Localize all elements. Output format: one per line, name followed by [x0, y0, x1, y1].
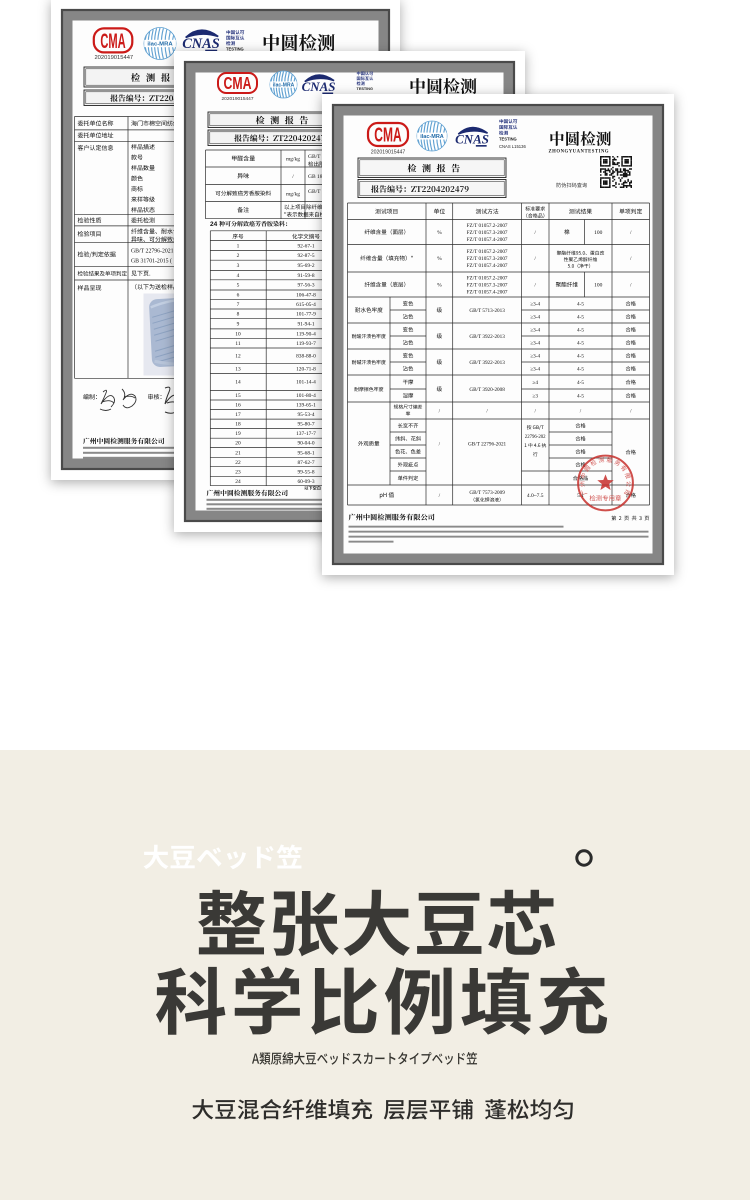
svg-text:≥3-4: ≥3-4	[530, 341, 540, 347]
svg-text:TESTING: TESTING	[357, 87, 374, 91]
svg-text:97-56-3: 97-56-3	[297, 283, 314, 289]
svg-text:5: 5	[237, 283, 240, 289]
svg-text:GB/T 7573-2009: GB/T 7573-2009	[469, 490, 505, 496]
svg-text:GB/T 22796-2021: GB/T 22796-2021	[131, 249, 174, 255]
svg-text:91-94-1: 91-94-1	[297, 322, 314, 328]
svg-text:CMA: CMA	[100, 30, 125, 53]
svg-text:120-71-8: 120-71-8	[296, 366, 316, 372]
svg-text:≥3: ≥3	[532, 394, 538, 400]
svg-text:17: 17	[235, 412, 241, 418]
svg-text:14: 14	[235, 380, 241, 386]
svg-text:9: 9	[237, 322, 240, 328]
svg-text:15: 15	[235, 393, 241, 399]
svg-text:≥4: ≥4	[532, 380, 538, 386]
svg-text:23: 23	[235, 469, 241, 475]
svg-text:GB/T 22796-2021: GB/T 22796-2021	[468, 442, 506, 448]
svg-text:%: %	[437, 256, 442, 262]
svg-text:119-93-7: 119-93-7	[296, 341, 316, 347]
svg-text:11: 11	[235, 341, 240, 347]
svg-text:CMA: CMA	[374, 125, 402, 147]
svg-text:FZ/T 01057.4-2007: FZ/T 01057.4-2007	[467, 289, 508, 295]
svg-text:95-68-1: 95-68-1	[297, 450, 314, 456]
svg-text:202019015447: 202019015447	[221, 96, 253, 102]
svg-text:GB/T 3920-2008: GB/T 3920-2008	[469, 387, 505, 393]
svg-text:2: 2	[237, 253, 240, 259]
svg-text:8: 8	[237, 312, 240, 318]
svg-text:≥3-4: ≥3-4	[530, 367, 540, 373]
svg-text:4-5: 4-5	[577, 341, 584, 347]
svg-text:CMA: CMA	[224, 73, 252, 93]
svg-text:FZ/T 01057.2-2007: FZ/T 01057.2-2007	[467, 275, 508, 281]
svg-text:20: 20	[235, 441, 241, 447]
svg-text:22: 22	[235, 460, 241, 466]
svg-text:mg/kg: mg/kg	[286, 157, 300, 163]
svg-text:FZ/T 01057.3-2007: FZ/T 01057.3-2007	[467, 230, 508, 236]
svg-text:≥3-4: ≥3-4	[530, 315, 540, 321]
svg-text:4-5: 4-5	[577, 328, 584, 334]
svg-text:119-90-4: 119-90-4	[296, 331, 316, 337]
svg-text:ilac-MRA: ilac-MRA	[273, 82, 295, 88]
svg-text:202019015447: 202019015447	[371, 150, 406, 156]
svg-text:FZ/T 01057.3-2007: FZ/T 01057.3-2007	[467, 256, 508, 262]
svg-text:4-5: 4-5	[577, 302, 584, 308]
svg-text:FZ/T 01057.4-2007: FZ/T 01057.4-2007	[467, 263, 508, 269]
svg-text:4-5: 4-5	[577, 380, 584, 386]
svg-text:106-47-8: 106-47-8	[296, 293, 316, 299]
svg-text:99-55-8: 99-55-8	[297, 469, 314, 475]
svg-text:GB 31701-2015 (: GB 31701-2015 (	[131, 258, 172, 265]
svg-text:GB/T 3922-2013: GB/T 3922-2013	[469, 360, 505, 366]
svg-text:87-62-7: 87-62-7	[297, 460, 314, 466]
svg-text:CNAS L15136: CNAS L15136	[499, 144, 526, 149]
svg-text:FZ/T 01057.4-2007: FZ/T 01057.4-2007	[467, 237, 508, 243]
svg-text:FZ/T 01057.2-2007: FZ/T 01057.2-2007	[467, 223, 508, 229]
svg-text:95-69-2: 95-69-2	[297, 263, 314, 269]
svg-text:4-5: 4-5	[577, 367, 584, 373]
svg-text:16: 16	[235, 403, 241, 409]
svg-text:3: 3	[237, 263, 240, 269]
svg-text:60-09-3: 60-09-3	[297, 479, 314, 485]
svg-text:18: 18	[235, 422, 241, 428]
svg-text:95-80-7: 95-80-7	[297, 422, 314, 428]
svg-text:TESTING: TESTING	[226, 47, 244, 52]
svg-text:FZ/T 01057.3-2007: FZ/T 01057.3-2007	[467, 282, 508, 288]
svg-text:mg/kg: mg/kg	[286, 191, 300, 197]
svg-text:4-5: 4-5	[577, 354, 584, 360]
svg-text:90-04-0: 90-04-0	[297, 441, 314, 447]
svg-text:TESTING: TESTING	[499, 136, 517, 141]
svg-text:202019015447: 202019015447	[94, 55, 133, 61]
svg-text:139-65-1: 139-65-1	[296, 403, 316, 409]
svg-text:≥3-4: ≥3-4	[530, 354, 540, 360]
svg-text:91-59-8: 91-59-8	[297, 273, 314, 279]
svg-text:92-67-1: 92-67-1	[297, 243, 314, 249]
svg-text:95-53-4: 95-53-4	[297, 412, 314, 418]
svg-text:1: 1	[237, 243, 240, 249]
svg-text:4.0~7.5: 4.0~7.5	[527, 493, 544, 499]
svg-text:13: 13	[235, 366, 241, 372]
svg-text:92-87-5: 92-87-5	[297, 253, 314, 259]
svg-text:615-05-4: 615-05-4	[296, 302, 316, 308]
svg-text:ilac-MRA: ilac-MRA	[420, 134, 444, 140]
svg-text:100: 100	[594, 230, 603, 236]
svg-text:CNAS: CNAS	[302, 80, 336, 94]
svg-text:100: 100	[594, 283, 603, 289]
svg-text:137-17-7: 137-17-7	[296, 431, 316, 437]
svg-text:ZHONGYUANTESTING: ZHONGYUANTESTING	[549, 150, 610, 155]
svg-text:838-88-0: 838-88-0	[296, 354, 316, 360]
svg-text:101-80-4: 101-80-4	[296, 393, 316, 399]
svg-text:4: 4	[237, 273, 240, 279]
svg-text:%: %	[437, 283, 442, 289]
svg-text:21: 21	[235, 450, 241, 456]
svg-text:≥3-4: ≥3-4	[530, 328, 540, 334]
svg-text:FZ/T 01057.2-2007: FZ/T 01057.2-2007	[467, 249, 508, 255]
svg-text:24: 24	[210, 221, 218, 228]
svg-text:24: 24	[235, 479, 241, 485]
svg-text:12: 12	[235, 354, 241, 360]
svg-text:≥3-4: ≥3-4	[530, 302, 540, 308]
svg-text:GB/T 3922-2013: GB/T 3922-2013	[469, 334, 505, 340]
svg-text:6: 6	[237, 293, 240, 299]
svg-text:10: 10	[235, 331, 241, 337]
svg-text:CNAS: CNAS	[455, 133, 489, 147]
svg-text:CNAS: CNAS	[182, 36, 220, 52]
svg-text:101-77-9: 101-77-9	[296, 312, 316, 318]
svg-text:GB/T 5713-2013: GB/T 5713-2013	[469, 308, 505, 314]
svg-text:ilac-MRA: ilac-MRA	[147, 42, 173, 48]
svg-text:%: %	[437, 230, 442, 236]
svg-text:19: 19	[235, 431, 241, 437]
svg-text:101-14-4: 101-14-4	[296, 380, 316, 386]
svg-text:4-5: 4-5	[577, 315, 584, 321]
svg-text:7: 7	[237, 302, 240, 308]
svg-text:22796-202: 22796-202	[525, 435, 546, 440]
svg-text:4-5: 4-5	[577, 394, 584, 400]
